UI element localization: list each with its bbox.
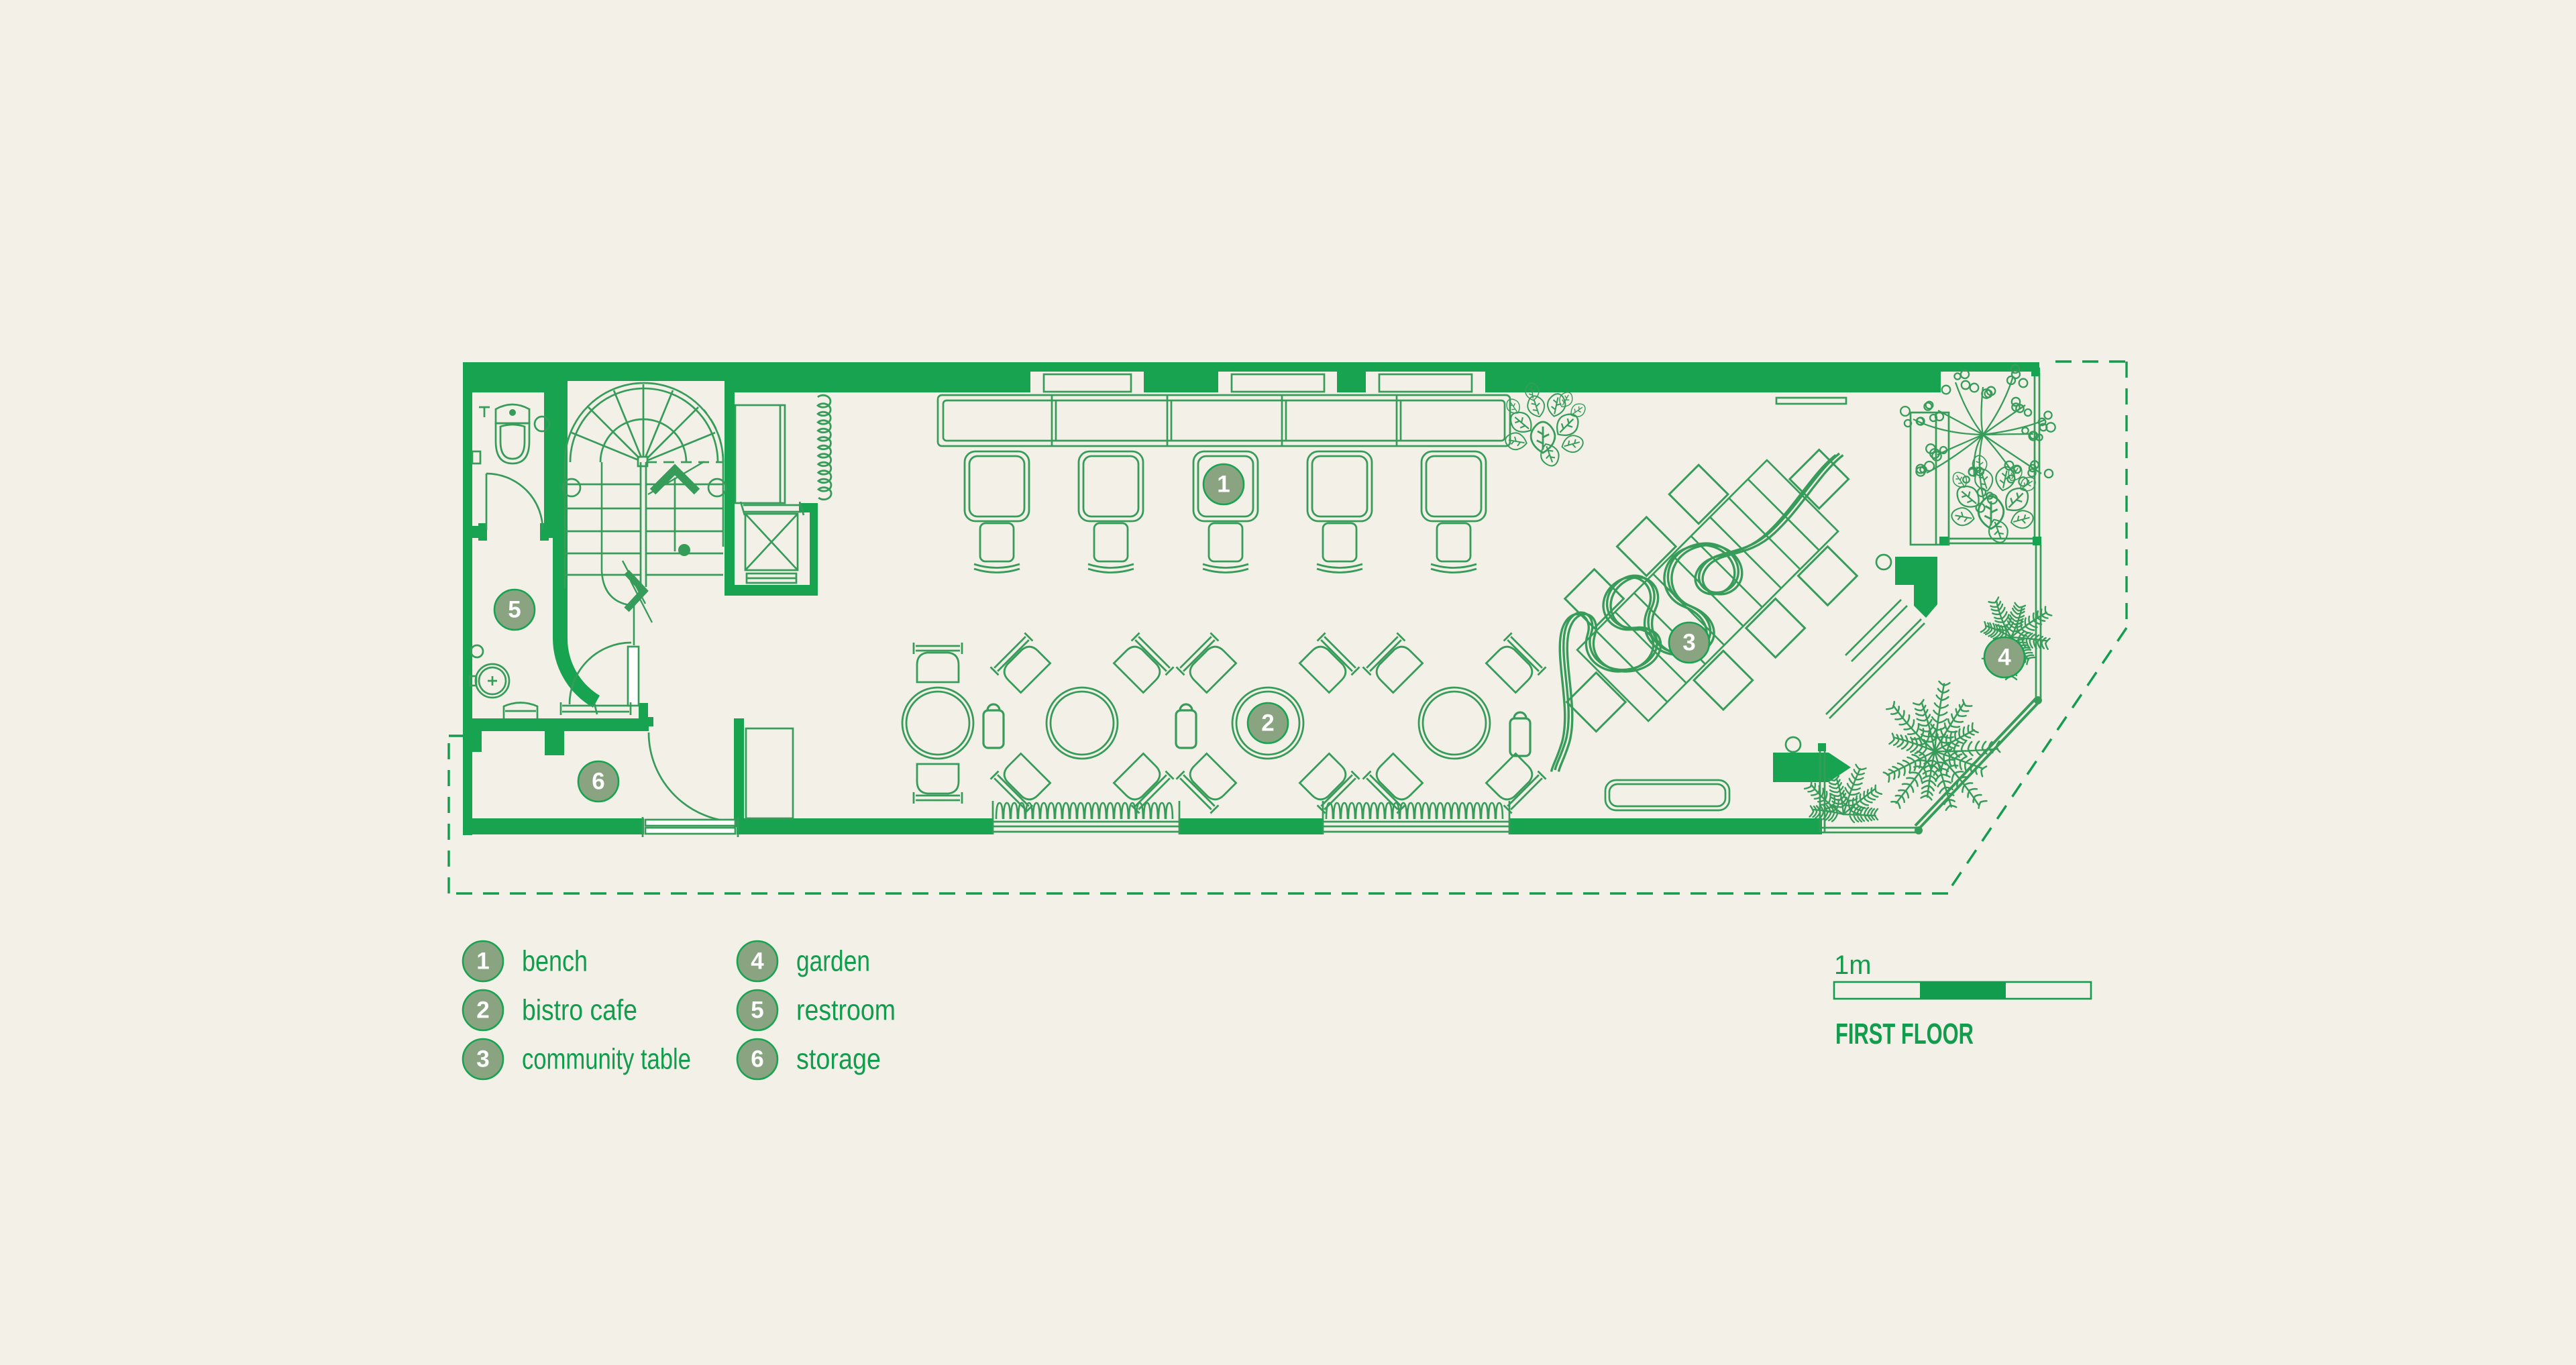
svg-text:bench: bench (522, 945, 588, 978)
svg-text:6: 6 (592, 769, 604, 795)
svg-text:3: 3 (476, 1046, 489, 1073)
svg-text:1: 1 (1217, 472, 1230, 498)
svg-text:bistro cafe: bistro cafe (522, 994, 637, 1027)
svg-text:2: 2 (1261, 710, 1274, 736)
svg-text:FIRST FLOOR: FIRST FLOOR (1835, 1018, 1974, 1050)
svg-text:6: 6 (751, 1046, 763, 1073)
svg-text:4: 4 (1998, 645, 2011, 671)
svg-text:3: 3 (1682, 630, 1695, 656)
svg-text:4: 4 (751, 948, 764, 975)
svg-text:1m: 1m (1834, 950, 1872, 980)
svg-text:5: 5 (508, 597, 521, 623)
svg-text:restroom: restroom (796, 994, 896, 1027)
svg-text:5: 5 (751, 997, 763, 1024)
svg-text:storage: storage (796, 1043, 881, 1076)
svg-text:community table: community table (522, 1043, 691, 1076)
svg-text:garden: garden (796, 945, 870, 978)
svg-text:2: 2 (476, 997, 489, 1024)
svg-text:1: 1 (476, 948, 489, 975)
